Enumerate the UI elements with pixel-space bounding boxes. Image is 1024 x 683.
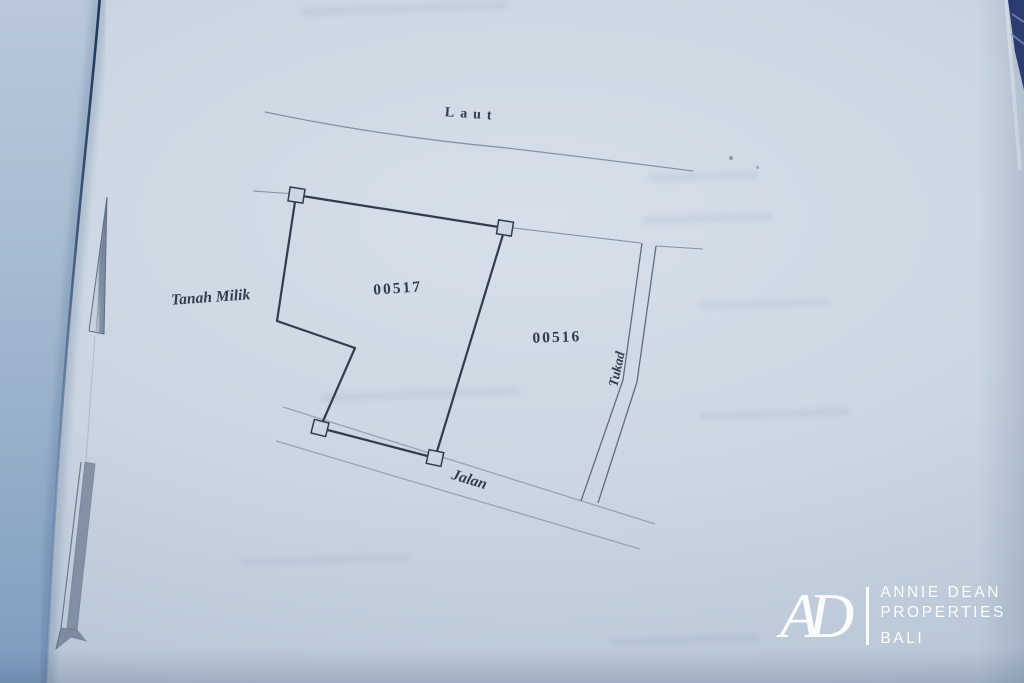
plot-number-adjacent: 00516 [532,328,581,347]
page-bottom-shadow [0,649,1024,683]
watermark-logo: AD ANNIE DEAN PROPERTIES BALI [780,581,1006,651]
corner-marker-top-right [496,220,513,236]
brand-monogram: AD [780,585,855,647]
plot-number-main: 00517 [373,278,423,298]
logo-divider [866,587,869,645]
north-arrow-shaft [86,336,95,460]
brand-name-line2: PROPERTIES [880,603,1006,623]
plot-boundary-00517 [277,195,505,458]
road-edge-upper [283,407,655,524]
north-arrow-head [89,197,107,334]
owner-label: Tanah Milik [171,286,251,308]
corner-marker-bottom-left [311,419,329,436]
sea-label: Laut [444,105,498,124]
boundary-line-right-of-river [656,246,703,249]
corner-marker-bottom-right [426,450,444,467]
brand-name-line1: ANNIE DEAN [880,583,1006,603]
brand-text: ANNIE DEAN PROPERTIES BALI [880,583,1006,649]
brand-location: BALI [880,629,1006,649]
road-edge-lower [276,441,640,549]
corner-marker-top-left [288,187,305,203]
north-arrow-fishtail [56,628,86,649]
river-bank-right [598,246,656,503]
boundary-line-to-river [505,227,641,243]
photographed-document-page: Laut Tanah Milik 00517 00516 Tukad Jalan… [0,0,1024,683]
